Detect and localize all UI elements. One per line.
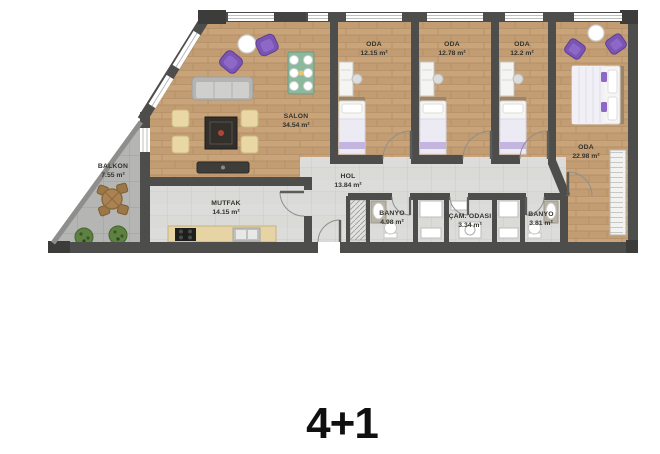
oda3-area: 12.2 m² (510, 50, 534, 57)
kitchen-furniture (168, 226, 276, 242)
stove (175, 228, 196, 241)
window (574, 13, 622, 21)
wall-balcony-upper (140, 112, 150, 128)
wall-oda2-hol (419, 155, 463, 164)
desk (420, 62, 434, 96)
balkon-area: 7.55 m² (101, 172, 125, 179)
oda3-furniture (500, 62, 526, 154)
banyo1-label: BANYO (379, 210, 405, 217)
hol-area: 13.84 m² (334, 182, 362, 189)
balcony-table (102, 189, 122, 209)
wall-salon-oda1 (330, 12, 338, 164)
side-table (588, 25, 604, 41)
wall-oda1-oda2 (411, 12, 419, 164)
mutfak-label: MUTFAK (211, 200, 241, 207)
single-bed (500, 97, 526, 154)
salon-area: 34.54 m² (282, 122, 310, 129)
single-bed (420, 97, 446, 154)
single-bed (339, 97, 365, 154)
side-table (238, 35, 256, 53)
oda2-label: ODA (444, 41, 460, 48)
mutfak-area: 14.15 m² (212, 209, 240, 216)
floor-plan-page: SALON 34.54 m² BALKON 7.55 m² MUTFAK 14.… (0, 0, 660, 454)
wall-bottom (48, 242, 638, 253)
oda2-area: 12.78 m² (438, 50, 466, 57)
wall-oda2-oda3 (491, 12, 499, 164)
dining-table (288, 52, 314, 94)
desk-chair (513, 74, 523, 84)
window (308, 13, 328, 21)
window (505, 13, 543, 21)
wall-right (628, 12, 638, 253)
wall-bath-v2 (366, 196, 370, 242)
wall-balcony-lower (140, 152, 150, 246)
oda4-area: 22.98 m² (572, 153, 600, 160)
entry-door-opening (318, 242, 340, 253)
wall-mutfak-hol-a (304, 177, 312, 190)
desk (339, 62, 353, 96)
kitchen-sink (233, 228, 260, 241)
wall-bath-top-d (544, 193, 564, 200)
wall-mutfak-hol-b (304, 216, 312, 246)
wall-bath-v3 (413, 196, 418, 242)
wall-bath-v5 (492, 196, 497, 242)
coffee-table (205, 117, 237, 149)
cam-odasi-area: 3.34 m² (458, 222, 482, 229)
banyo2-area: 3.81 m² (529, 220, 553, 227)
wall-bath-v6 (520, 196, 525, 242)
window (346, 13, 402, 21)
oda1-furniture (339, 62, 365, 154)
oda2-furniture (420, 62, 446, 154)
oda1-area: 12.15 m² (360, 50, 388, 57)
desk-chair (352, 74, 362, 84)
desk-chair (433, 74, 443, 84)
tv-console (197, 162, 249, 173)
floor-plan-canvas: SALON 34.54 m² BALKON 7.55 m² MUTFAK 14.… (0, 0, 660, 454)
oda1-label: ODA (366, 41, 382, 48)
window (427, 13, 483, 21)
desk (500, 62, 514, 96)
oda4-label: ODA (578, 144, 594, 151)
wardrobe (610, 150, 626, 235)
cam-odasi-label: ÇAM. ODASI (449, 213, 492, 220)
plan-type-title: 4+1 (306, 399, 378, 448)
oda3-label: ODA (514, 41, 530, 48)
sofa (192, 77, 253, 100)
window (228, 13, 274, 21)
wall-bath-v1 (346, 196, 350, 242)
salon-label: SALON (284, 113, 309, 120)
shaft (350, 200, 366, 240)
balkon-label: BALKON (98, 163, 128, 170)
wall-oda4-bath (560, 196, 568, 246)
balcony-door-opening (140, 128, 150, 152)
wall-salon-mutfak (150, 177, 304, 186)
wall-oda1-hol (338, 155, 383, 164)
double-bed (572, 66, 624, 124)
plant (109, 226, 127, 244)
banyo1-area: 4.98 m² (380, 219, 404, 226)
banyo2-label: BANYO (528, 211, 554, 218)
wall-oda3-hol (499, 155, 520, 164)
hol-label: HOL (341, 173, 356, 180)
